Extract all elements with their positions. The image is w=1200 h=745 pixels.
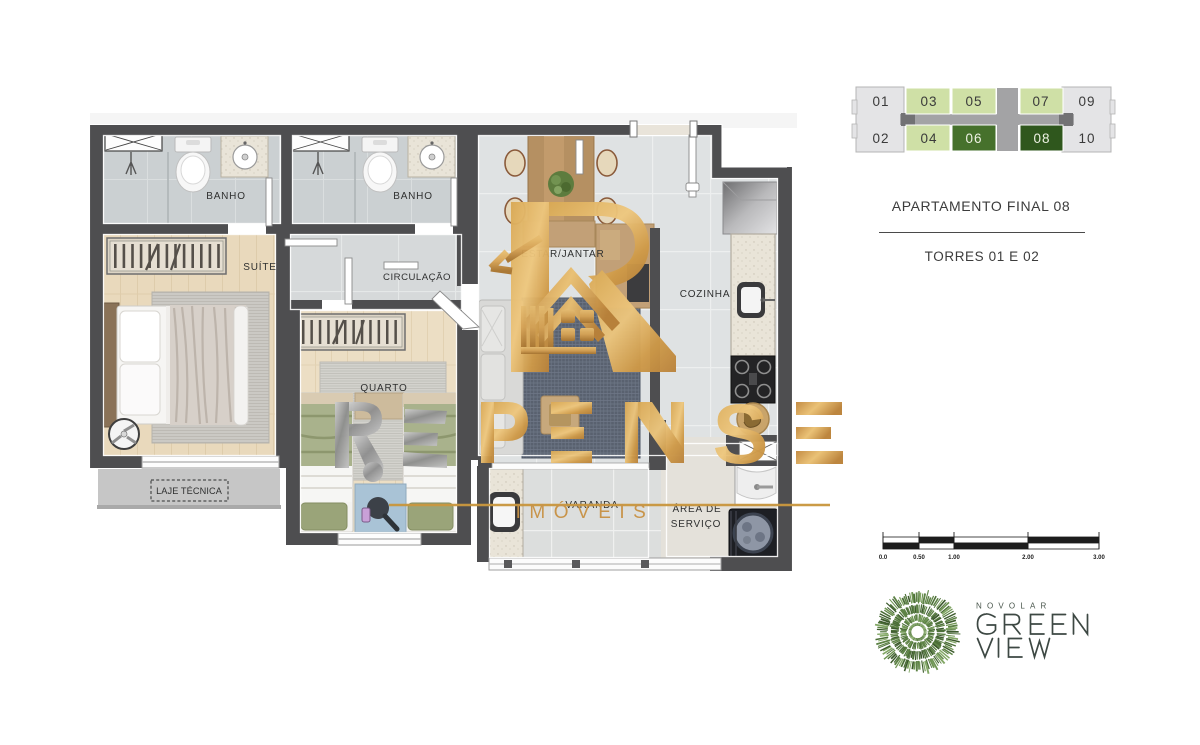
svg-text:S: S (712, 387, 768, 481)
svg-text:BANHO: BANHO (206, 191, 246, 202)
svg-text:SERVIÇO: SERVIÇO (671, 519, 721, 530)
svg-text:06: 06 (965, 131, 982, 146)
svg-text:1.00: 1.00 (948, 555, 960, 561)
svg-text:3.00: 3.00 (1093, 555, 1105, 561)
svg-text:SUÍTE: SUÍTE (243, 260, 276, 273)
svg-text:09: 09 (1078, 94, 1095, 109)
svg-text:BANHO: BANHO (393, 191, 433, 202)
svg-text:01: 01 (872, 94, 889, 109)
svg-text:2.00: 2.00 (1022, 555, 1034, 561)
svg-text:TORRES 01 E 02: TORRES 01 E 02 (925, 249, 1040, 264)
svg-text:0.0: 0.0 (879, 555, 888, 561)
svg-text:05: 05 (965, 94, 982, 109)
svg-text:10: 10 (1078, 131, 1095, 146)
svg-text:03: 03 (920, 94, 937, 109)
svg-text:COZINHA: COZINHA (680, 289, 731, 300)
svg-text:0.50: 0.50 (913, 555, 925, 561)
svg-text:08: 08 (1033, 131, 1050, 146)
svg-text:07: 07 (1032, 94, 1049, 109)
svg-text:04: 04 (920, 131, 937, 146)
svg-text:IMÓVEIS: IMÓVEIS (516, 501, 655, 523)
svg-text:02: 02 (872, 131, 889, 146)
svg-text:CIRCULAÇÃO: CIRCULAÇÃO (383, 272, 451, 283)
svg-text:NOVOLAR: NOVOLAR (976, 602, 1052, 611)
svg-text:LAJE TÉCNICA: LAJE TÉCNICA (156, 486, 223, 496)
svg-text:QUARTO: QUARTO (360, 383, 407, 394)
svg-text:APARTAMENTO FINAL 08: APARTAMENTO FINAL 08 (892, 198, 1071, 214)
